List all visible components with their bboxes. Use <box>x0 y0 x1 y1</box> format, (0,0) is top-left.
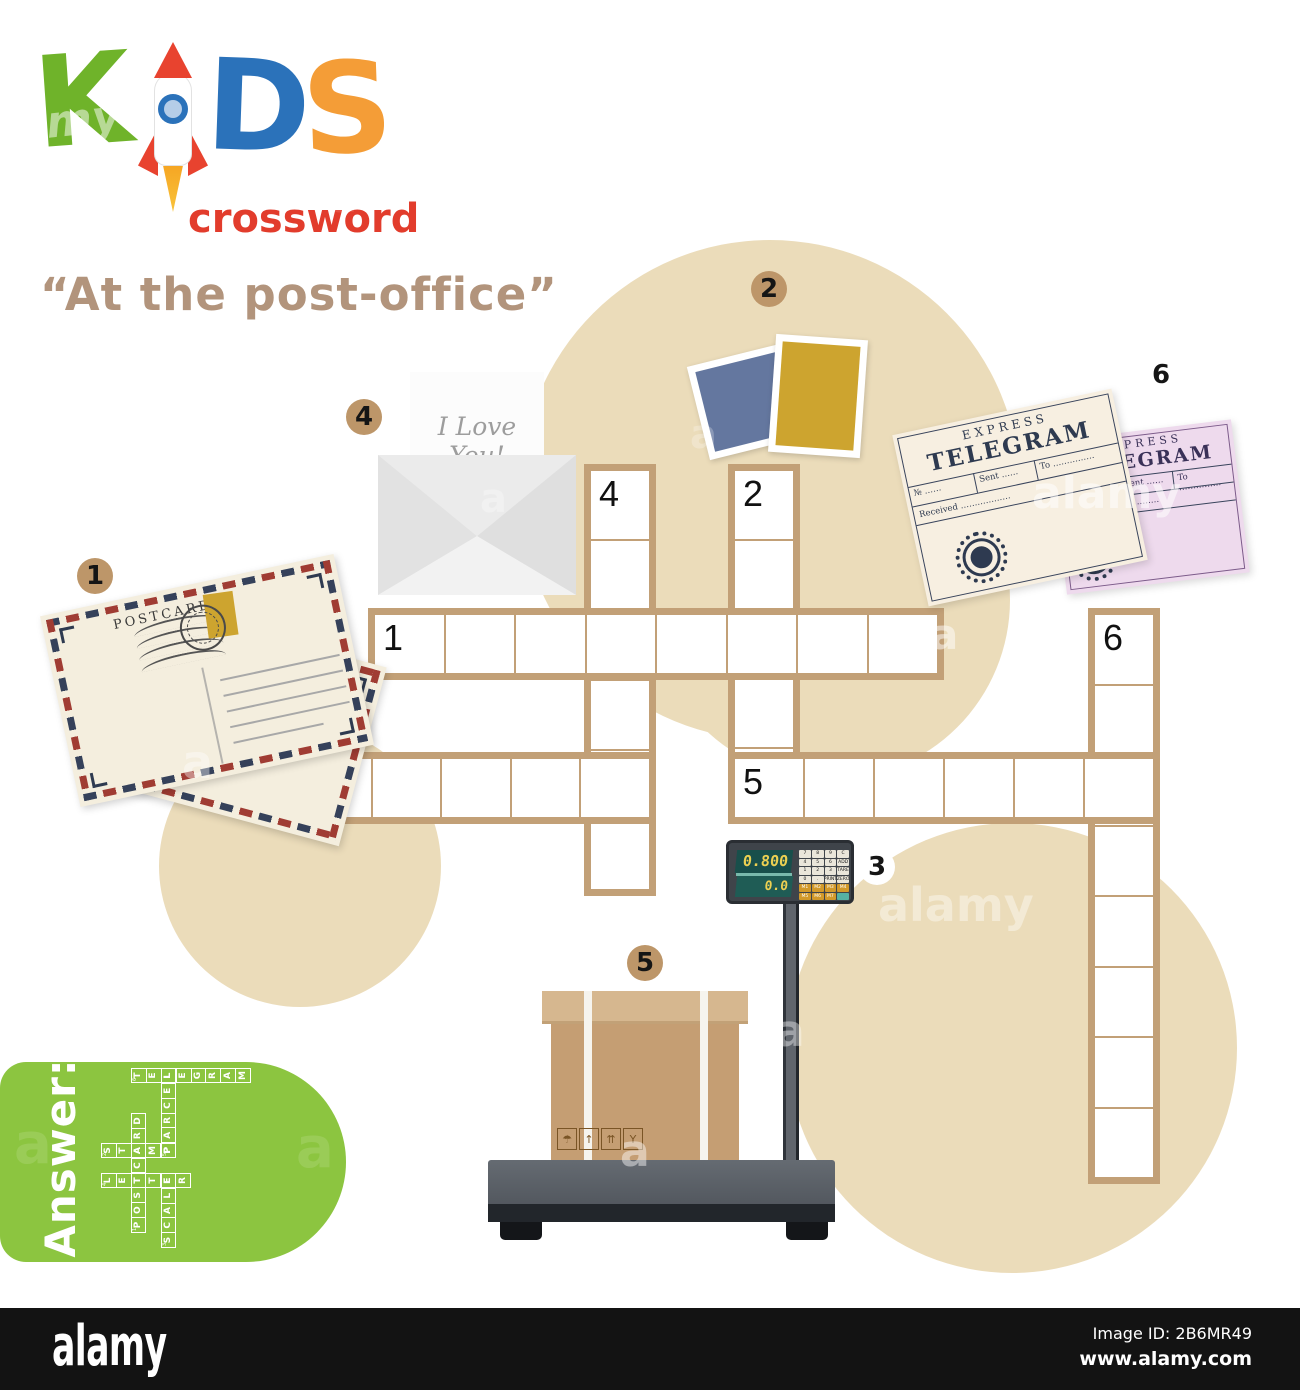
fragile-icons: ☂↑⇈Y <box>557 1128 643 1150</box>
answer-cell: C <box>162 1098 175 1113</box>
rocket-icon <box>138 42 208 212</box>
crossword-cell[interactable] <box>1095 897 1153 968</box>
answer-cell: 2S <box>102 1144 117 1157</box>
answer-cell: 1P <box>132 1217 145 1232</box>
scale-key: 6 <box>825 859 837 867</box>
answer-cell: M <box>146 1144 161 1157</box>
crossword-cell[interactable] <box>1015 759 1085 817</box>
alamy-watermark: a <box>940 70 967 116</box>
logo-letter-d: D <box>204 42 313 172</box>
crossword-cell[interactable] <box>735 541 793 611</box>
crossword-cell[interactable] <box>945 759 1015 817</box>
answer-letter: E <box>179 1072 188 1078</box>
crossword-cell[interactable] <box>1095 1038 1153 1109</box>
answer-cell: R <box>132 1128 145 1143</box>
answer-cell: D <box>132 1114 145 1128</box>
weight-readout: 0.800 <box>735 850 793 873</box>
answer-letter: O <box>134 1206 143 1214</box>
answer-letter: M <box>149 1146 158 1155</box>
answer-letter: A <box>134 1147 143 1154</box>
answer-cell: A <box>221 1069 236 1082</box>
page-title: “At the post-office” <box>40 268 558 321</box>
scale-foot <box>786 1222 828 1240</box>
answer-cell: 3S <box>162 1232 175 1247</box>
answer-letter: D <box>134 1117 143 1124</box>
rocket-nose-icon <box>154 42 192 78</box>
clue-number: 6 <box>132 1078 138 1081</box>
scale-key: 8 <box>812 850 824 858</box>
answer-cell: T <box>117 1144 132 1157</box>
clue-marker-2: 2 <box>751 271 787 307</box>
answer-cell: 4L <box>102 1174 117 1187</box>
answer-cell: E <box>162 1083 175 1098</box>
answer-letter: R <box>209 1072 218 1079</box>
scale-key: M5 <box>799 893 811 901</box>
scale-key: M2 <box>812 884 824 892</box>
crossword-cell[interactable] <box>373 759 443 817</box>
corner-mark-icon <box>337 718 355 736</box>
crossword-cell[interactable] <box>728 615 799 673</box>
crossword-cell[interactable] <box>657 615 728 673</box>
crossword-cell[interactable] <box>875 759 945 817</box>
answer-word-1: 1POSTCARD <box>131 1113 146 1233</box>
answer-word-5: 5PARCEL <box>161 1068 176 1158</box>
answer-cell: L <box>162 1069 175 1083</box>
clue-number: 1 <box>383 617 403 659</box>
answer-letter: L <box>164 1193 173 1199</box>
answer-letter: E <box>164 1088 173 1094</box>
clue-number: 4 <box>599 473 619 515</box>
fragile-icon: Y <box>623 1128 643 1150</box>
clue-number: 6 <box>1103 617 1123 659</box>
scale-key: 2 <box>812 867 824 875</box>
answer-cell: R <box>176 1174 190 1187</box>
answer-cell: R <box>162 1113 175 1128</box>
crossword-cell[interactable]: 5 <box>735 759 805 817</box>
corner-mark-icon <box>59 626 77 644</box>
clue-number: 2 <box>102 1153 108 1156</box>
scale-platform <box>488 1160 835 1204</box>
scale-key: 0 <box>799 876 811 884</box>
answer-cell: 6T <box>132 1069 147 1082</box>
scale-pole <box>783 900 799 1162</box>
answer-word-4: 4LETTER <box>101 1173 191 1188</box>
footer-bar: alamy Image ID: 2B6MR49 www.alamy.com <box>0 1308 1300 1390</box>
crossword-cell[interactable] <box>591 821 649 889</box>
crossword-cell[interactable] <box>587 615 658 673</box>
scale-key: 5 <box>812 859 824 867</box>
scale-key: M4 <box>837 884 849 892</box>
crossword-cell[interactable] <box>1095 1109 1153 1178</box>
clue-marker-3: 3 <box>859 849 895 885</box>
scale-key: ADD <box>837 859 849 867</box>
crossword-cell[interactable]: 2 <box>735 471 793 541</box>
clue-number: 5 <box>162 1153 168 1156</box>
clue-marker-6: 6 <box>1143 357 1179 393</box>
crossword-cell[interactable]: 4 <box>591 471 649 541</box>
logo-letter-s: S <box>300 44 395 173</box>
answer-mini-grid: 2STAMP4LETTER6TELEGRAM1POSTCARD3SCALE5PA… <box>101 1068 251 1248</box>
scale-key <box>837 893 849 901</box>
answer-cell: M <box>236 1069 250 1082</box>
alamy-url[interactable]: www.alamy.com <box>1079 1348 1252 1370</box>
crossword-cell[interactable] <box>591 541 649 611</box>
fragile-icon: ☂ <box>557 1128 577 1150</box>
crossword-cell[interactable] <box>581 759 649 817</box>
scale-key: 9 <box>825 850 837 858</box>
crossword-cell[interactable] <box>446 615 517 673</box>
answer-cell: T <box>132 1173 145 1188</box>
scale-keypad: 789C456ADD123TARE0.PRINTZEROM1M2M3M4M5M6… <box>799 850 849 900</box>
answer-letter: E <box>149 1072 158 1078</box>
corner-mark-icon <box>90 770 108 788</box>
answer-cell: E <box>117 1174 132 1187</box>
answer-word-3: 3SCALE <box>161 1173 176 1248</box>
answer-cell: E <box>177 1069 192 1082</box>
clue-number: 2 <box>743 473 763 515</box>
fragile-icon: ↑ <box>579 1128 599 1150</box>
scale-platform-base <box>488 1204 835 1222</box>
answer-cell: L <box>162 1188 175 1203</box>
scale-key: ZERO <box>837 876 849 884</box>
logo-crossword-label: crossword <box>188 196 419 242</box>
scale-key: M3 <box>825 884 837 892</box>
answer-cell: R <box>206 1069 221 1082</box>
answer-cell: E <box>162 1174 175 1188</box>
crossword-cell[interactable] <box>591 681 649 751</box>
answer-word-6: 6TELEGRAM <box>131 1068 251 1083</box>
scale-key: TARE <box>837 867 849 875</box>
answer-label: Answer: <box>36 1048 88 1268</box>
answer-letter: T <box>149 1177 158 1183</box>
crossword-cell[interactable] <box>869 615 938 673</box>
crossword-cell[interactable]: 6 <box>1095 615 1153 686</box>
tare-readout: 0.0 <box>735 876 793 897</box>
answer-letter: A <box>164 1207 173 1214</box>
crossword-cell[interactable] <box>1085 759 1153 817</box>
answer-cell: S <box>132 1187 145 1202</box>
clue-word-1: 1 <box>368 608 944 680</box>
answer-cell: A <box>162 1203 175 1218</box>
letter-text-line1: I Love <box>410 412 544 441</box>
crossword-cell[interactable] <box>805 759 875 817</box>
clue-marker-1: 1 <box>77 558 113 594</box>
clue-marker-4: 4 <box>346 399 382 435</box>
parcel-strap <box>700 991 708 1160</box>
answer-cell: C <box>162 1217 175 1232</box>
scale-key: . <box>812 876 824 884</box>
answer-cell: C <box>132 1158 145 1173</box>
alamy-logo: alamy <box>52 1314 166 1379</box>
answer-letter: L <box>164 1073 173 1079</box>
answer-letter: R <box>134 1132 143 1139</box>
answer-letter: R <box>164 1117 173 1124</box>
answer-letter: A <box>164 1132 173 1139</box>
crossword-cell[interactable] <box>512 759 582 817</box>
answer-letter: S <box>134 1192 143 1198</box>
answer-cell: A <box>132 1143 145 1158</box>
answer-letter: C <box>164 1102 173 1109</box>
worksheet-canvas: 246135 POSTCARD I Love Y <box>0 0 1300 1390</box>
crossword-cell[interactable]: 1 <box>375 615 446 673</box>
clue-number: 3 <box>162 1243 168 1246</box>
scale-key: M6 <box>812 893 824 901</box>
answer-cell: 5P <box>162 1142 175 1157</box>
answer-cell: A <box>162 1127 175 1142</box>
rocket-flame-icon <box>160 166 186 212</box>
answer-letter: E <box>164 1178 173 1184</box>
crossword-cell[interactable] <box>798 615 869 673</box>
scale-key: M7 <box>825 893 837 901</box>
answer-letter: T <box>119 1147 128 1153</box>
answer-letter: T <box>134 1177 143 1183</box>
corner-mark-icon <box>306 573 324 591</box>
logo-my-watermark: my <box>44 90 123 149</box>
background-blob <box>787 823 1237 1273</box>
scale-key: C <box>837 850 849 858</box>
answer-cell: E <box>147 1069 162 1082</box>
clue-number: 4 <box>102 1183 108 1186</box>
scale-key: 7 <box>799 850 811 858</box>
scale-key: 3 <box>825 867 837 875</box>
clue-number: 1 <box>132 1228 138 1231</box>
scale-key: 1 <box>799 867 811 875</box>
answer-letter: C <box>134 1162 143 1169</box>
parcel-lid <box>542 991 748 1024</box>
scale-key: 4 <box>799 859 811 867</box>
clue-marker-5: 5 <box>627 945 663 981</box>
stamp-gold-icon <box>768 334 868 458</box>
crossword-cell[interactable] <box>1095 827 1153 898</box>
answer-cell: T <box>146 1174 161 1187</box>
answer-cell: O <box>132 1202 145 1217</box>
answer-letter: R <box>179 1177 188 1184</box>
clue-word-4: 4 <box>584 464 656 896</box>
crossword-cell[interactable] <box>735 680 793 750</box>
scale-display: 0.800 0.0 789C456ADD123TARE0.PRINTZEROM1… <box>726 840 854 904</box>
answer-letter: A <box>224 1072 233 1079</box>
answer-letter: C <box>164 1222 173 1229</box>
clue-word-6: 6 <box>1088 608 1160 1184</box>
image-id-text: Image ID: 2B6MR49 <box>1093 1324 1252 1343</box>
crossword-cell[interactable] <box>1095 686 1153 757</box>
answer-letter: M <box>239 1071 248 1080</box>
scale-key: PRINT <box>825 876 837 884</box>
clue-number: 5 <box>743 761 763 803</box>
clue-word-5: 5 <box>728 752 1160 824</box>
scale-key: M1 <box>799 884 811 892</box>
crossword-cell[interactable] <box>442 759 512 817</box>
scale-foot <box>500 1222 542 1240</box>
answer-letter: G <box>194 1072 203 1079</box>
answer-cell: G <box>192 1069 207 1082</box>
fragile-icon: ⇈ <box>601 1128 621 1150</box>
crossword-cell[interactable] <box>516 615 587 673</box>
crossword-cell[interactable] <box>1095 968 1153 1039</box>
answer-letter: E <box>119 1177 128 1183</box>
